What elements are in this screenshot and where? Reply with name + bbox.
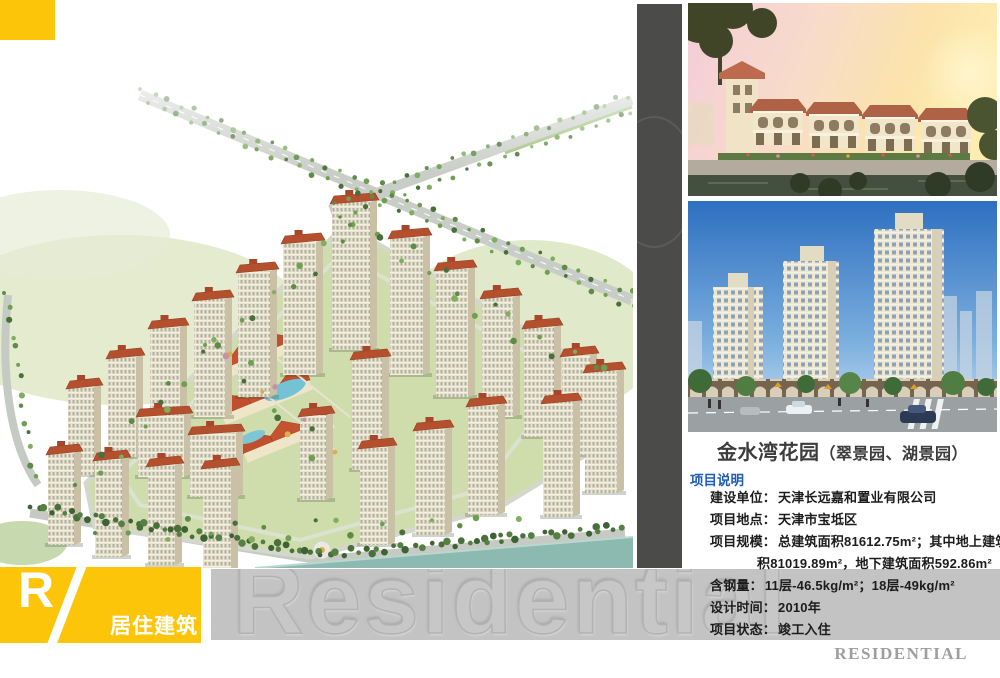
detail-row-location: 项目地点：天津市宝坻区	[710, 509, 857, 528]
tower-right	[874, 213, 944, 386]
footer-brand: RESIDENTIAL	[820, 644, 968, 664]
project-title-main: 金水湾花园	[717, 442, 820, 464]
highrise-photo	[688, 201, 997, 432]
project-title: 金水湾花园（翠景园、湖景园）	[688, 436, 997, 465]
detail-value: 2010年	[778, 600, 821, 615]
watermark-fragment	[637, 116, 682, 248]
divider-strip	[637, 4, 682, 568]
detail-row-developer: 建设单位：天津长远嘉和置业有限公司	[710, 487, 936, 506]
detail-row-scale: 项目规模：总建筑面积81612.75m²；其中地上建筑面	[710, 531, 1000, 550]
detail-label: 含钢量：	[710, 578, 763, 593]
category-block: R 居住建筑	[0, 567, 201, 643]
detail-label: 设计时间：	[710, 600, 776, 615]
hedge-row	[718, 153, 970, 160]
detail-row-scale-wrap: 积81019.89m²，地下建筑面积592.86m²	[757, 553, 992, 572]
distant-villa	[688, 103, 714, 145]
tower-left	[713, 273, 763, 386]
detail-label: 项目规模：	[710, 534, 776, 549]
villa-photo	[688, 3, 997, 196]
tower-middle	[783, 246, 839, 386]
sky-fade	[0, 45, 633, 175]
corner-accent-block	[0, 0, 55, 40]
project-title-paren: （翠景园、湖景园）	[819, 446, 968, 463]
detail-value: 11层-46.5kg/m²；18层-49kg/m²	[765, 578, 955, 593]
detail-row-status: 项目状态：竣工入住	[710, 619, 831, 638]
detail-value: 天津市宝坻区	[778, 512, 857, 527]
detail-value: 竣工入住	[778, 622, 831, 637]
detail-row-design-time: 设计时间：2010年	[710, 597, 821, 616]
detail-row-steel: 含钢量：11层-46.5kg/m²；18层-49kg/m²	[710, 575, 955, 594]
category-label: 居住建筑	[104, 610, 198, 640]
section-label: 项目说明	[690, 469, 744, 489]
detail-label: 项目地点：	[710, 512, 776, 527]
category-letter: R	[18, 567, 54, 619]
detail-label: 项目状态：	[710, 622, 776, 637]
detail-label: 建设单位：	[710, 490, 776, 505]
watermark-text: Residential	[233, 569, 789, 640]
detail-value: 天津长远嘉和置业有限公司	[778, 490, 936, 505]
road	[688, 397, 997, 432]
road	[688, 160, 997, 175]
aerial-rendering-image	[0, 45, 633, 568]
portfolio-page: 金水湾花园（翠景园、湖景园） 项目说明 建设单位：天津长远嘉和置业有限公司 项目…	[0, 0, 1000, 678]
detail-value: 总建筑面积81612.75m²；其中地上建筑面	[778, 534, 1000, 549]
